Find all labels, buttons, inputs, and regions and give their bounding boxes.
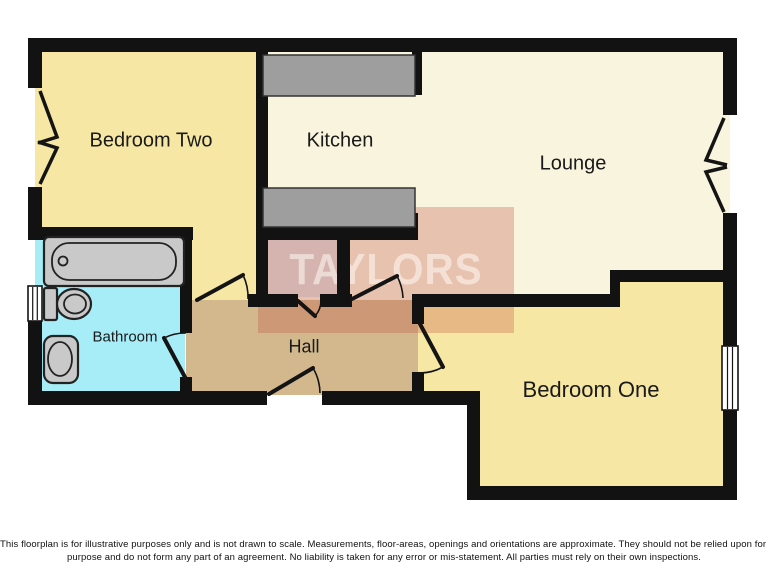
bathroom-door-icon — [164, 333, 186, 379]
lounge-label: Lounge — [540, 153, 607, 176]
symbols-overlay — [0, 0, 768, 576]
sink-icon — [44, 336, 78, 383]
bedroom-one-label: Bedroom One — [523, 377, 660, 403]
bedroom-two-door-icon — [197, 275, 248, 300]
kitchen-counter-bottom — [263, 188, 415, 227]
disclaimer-line-1: This floorplan is for illustrative purpo… — [0, 538, 768, 551]
toilet-icon — [44, 288, 91, 320]
bedroom-two-label: Bedroom Two — [89, 130, 212, 153]
floorplan-canvas: TAYLORS — [0, 0, 768, 576]
bedroom-one-window-icon — [722, 346, 738, 410]
bedroom-two-window-icon — [38, 91, 57, 184]
lounge-window-icon — [706, 118, 727, 212]
disclaimer-line-2: purpose and do not form any part of an a… — [0, 551, 768, 564]
kitchen-counter-top — [263, 55, 415, 96]
kitchen-door-icon — [352, 276, 403, 299]
bathroom-window-icon — [28, 286, 42, 321]
hall-label: Hall — [288, 337, 319, 358]
disclaimer: This floorplan is for illustrative purpo… — [0, 538, 768, 564]
bedroom-one-door-icon — [420, 324, 443, 373]
kitchen-label: Kitchen — [307, 130, 374, 153]
bathtub-icon — [44, 237, 184, 286]
bathroom-label: Bathroom — [92, 329, 157, 346]
entrance-door-icon — [269, 368, 320, 394]
cupboard-door-icon — [298, 301, 321, 316]
